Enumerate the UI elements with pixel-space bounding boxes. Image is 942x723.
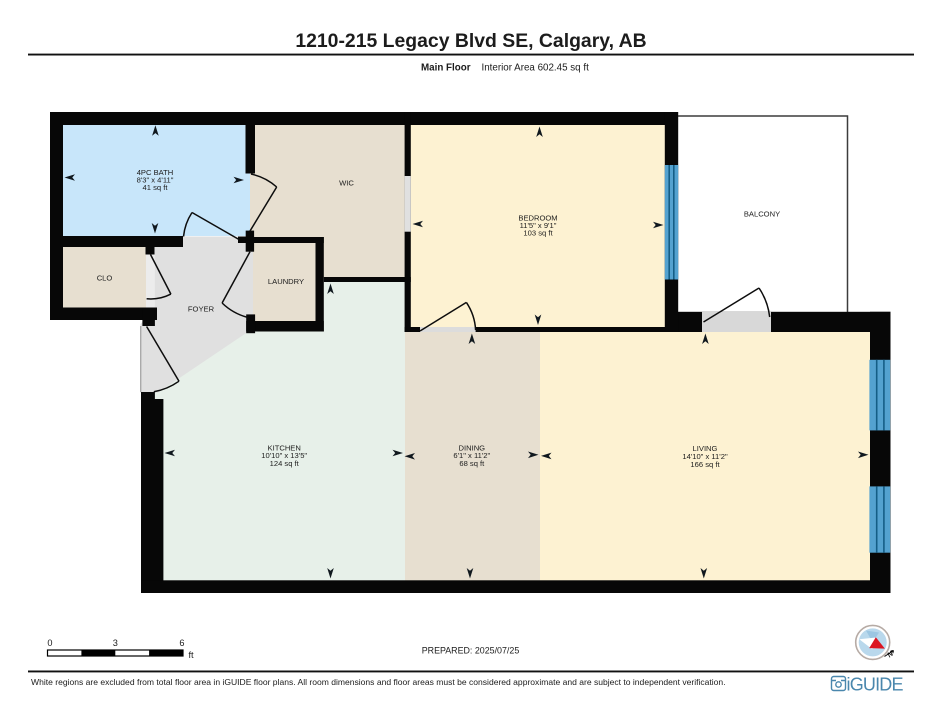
svg-text:103 sq ft: 103 sq ft: [523, 228, 553, 237]
svg-text:Main Floor: Main Floor: [421, 63, 471, 74]
svg-text:N: N: [885, 648, 895, 659]
svg-text:BALCONY: BALCONY: [744, 210, 780, 219]
svg-text:LAUNDRY: LAUNDRY: [268, 277, 304, 286]
svg-text:FOYER: FOYER: [188, 305, 215, 314]
svg-text:41 sq ft: 41 sq ft: [143, 183, 169, 192]
svg-text:PREPARED: 2025/07/25: PREPARED: 2025/07/25: [422, 646, 520, 656]
svg-text:124 sq ft: 124 sq ft: [270, 459, 300, 468]
svg-text:White regions are excluded fro: White regions are excluded from total fl…: [31, 677, 726, 687]
svg-text:166 sq ft: 166 sq ft: [690, 460, 720, 469]
svg-text:iGUIDE: iGUIDE: [847, 675, 904, 695]
svg-text:Interior Area 602.45 sq ft: Interior Area 602.45 sq ft: [482, 63, 590, 74]
svg-text:WIC: WIC: [339, 179, 354, 188]
svg-text:ft: ft: [189, 650, 195, 660]
svg-text:68 sq ft: 68 sq ft: [459, 459, 485, 468]
svg-text:CLO: CLO: [97, 274, 113, 283]
svg-text:1210-215 Legacy Blvd SE, Calga: 1210-215 Legacy Blvd SE, Calgary, AB: [295, 30, 646, 52]
svg-text:6: 6: [179, 638, 184, 648]
svg-text:0: 0: [47, 638, 52, 648]
svg-text:3: 3: [113, 638, 118, 648]
